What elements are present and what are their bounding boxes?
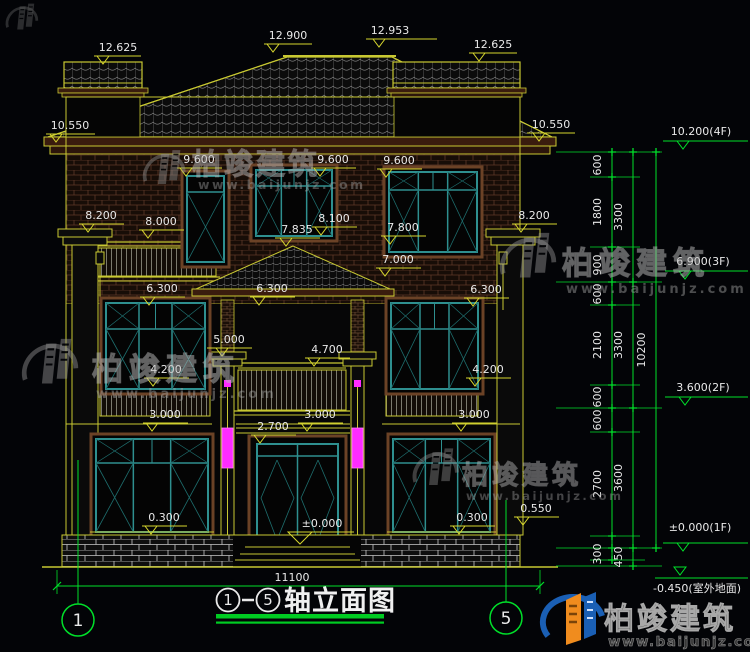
level-mark-label: 6.300: [256, 282, 288, 295]
title-axis-number-5: 5: [263, 591, 273, 609]
entry-door: [249, 436, 346, 550]
watermark-text: 柏竣建筑: [462, 460, 582, 491]
lamp-cap: [354, 380, 361, 387]
level-mark-label: ±0.000: [302, 517, 343, 530]
level-mark-label: 12.953: [371, 24, 410, 37]
chain-dim-label: 10200: [635, 333, 648, 368]
level-mark-label: 7.800: [387, 221, 419, 234]
level-mark-label: 3.600(2F): [676, 381, 729, 394]
level-mark-label: 7.835: [281, 223, 313, 236]
level-mark-label: 4.700: [311, 343, 343, 356]
level-mark-label: 8.100: [318, 212, 350, 225]
level-mark-label: 12.625: [474, 38, 513, 51]
level-mark-label: 9.600: [383, 154, 415, 167]
axis-bubble-number: 5: [501, 609, 512, 629]
level-mark-label: 2.700: [257, 420, 289, 433]
axis-bubble-number: 1: [73, 611, 84, 631]
logo-url: www.baijunjz.com: [608, 634, 750, 650]
chain-dim-label: 600: [591, 155, 604, 176]
chain-dim-label: 450: [612, 547, 625, 568]
level-mark-label: 5.000: [213, 333, 245, 346]
window: [384, 167, 482, 257]
porch-pier-right: [351, 300, 364, 352]
title-text: 轴立面图: [284, 585, 396, 617]
level-mark-label: ±0.000(1F): [669, 521, 732, 534]
chain-dim-label: 3300: [612, 203, 625, 231]
chain-dim-label: 300: [591, 544, 604, 565]
chain-dim-label: 600: [591, 410, 604, 431]
elevation-drawing-canvas: 15 12.62512.90012.95312.62510.55010.5509…: [0, 0, 750, 652]
steps-gap: [233, 535, 361, 567]
right-wing-roof: [387, 62, 526, 137]
level-mark-label: 10.550: [532, 118, 571, 131]
wall-lamp: [222, 428, 233, 468]
overall-width-dimension: 11100: [275, 571, 310, 584]
watermark-url: www.baijunjz.com: [198, 177, 366, 192]
level-mark-label: 7.000: [382, 253, 414, 266]
chain-dim-label: 1800: [591, 198, 604, 226]
watermark-text: 柏竣建筑: [192, 147, 320, 181]
level-mark-label: 6.300: [470, 283, 502, 296]
title-underline-thick: [216, 614, 384, 619]
logo-text-cn: 柏竣建筑: [604, 602, 736, 637]
pilaster-lamp: [96, 252, 104, 264]
window: [386, 298, 483, 394]
main-eave-band: [44, 137, 556, 146]
level-mark-label: 4.200: [472, 363, 504, 376]
level-mark-label: 10.550: [51, 119, 90, 132]
level-mark-label: 9.600: [317, 153, 349, 166]
title-underline-thin: [216, 622, 384, 624]
logo-building-blue: [584, 592, 596, 639]
level-mark-label: 0.550: [520, 502, 552, 515]
watermark-url: www.baijunjz.com: [466, 489, 623, 503]
wall-lamp: [352, 428, 363, 468]
level-mark-label: 10.200(4F): [671, 125, 731, 138]
level-mark-label: 3.000: [149, 408, 181, 421]
level-mark-label: -0.450(室外地面): [653, 581, 741, 595]
chain-dim-label: 3300: [612, 331, 625, 359]
watermark-text: 柏竣建筑: [92, 352, 240, 388]
level-mark-label: 8.000: [145, 215, 177, 228]
level-mark-label: 3.000: [458, 408, 490, 421]
level-mark-label: 0.300: [148, 511, 180, 524]
level-mark-label: 3.000: [304, 408, 336, 421]
title-axis-number-1: 1: [223, 591, 233, 609]
level-mark-label: 12.900: [269, 29, 308, 42]
watermark-url: www.baijunjz.com: [96, 387, 277, 402]
level-mark-label: 12.625: [99, 41, 138, 54]
watermark-url: www.baijunjz.com: [566, 282, 747, 297]
level-mark-label: 8.200: [85, 209, 117, 222]
level-mark-label: 0.300: [456, 511, 488, 524]
chain-dim-label: 2100: [591, 331, 604, 359]
stone-base: [42, 535, 558, 567]
right-wing-wall: [394, 97, 520, 137]
level-mark-label: 8.200: [518, 209, 550, 222]
watermark-text: 柏竣建筑: [562, 246, 710, 282]
chain-dim-label: 600: [591, 387, 604, 408]
level-mark-label: 6.300: [146, 282, 178, 295]
logo-building-orange: [566, 593, 581, 645]
chain-dim-label: 3600: [612, 464, 625, 492]
